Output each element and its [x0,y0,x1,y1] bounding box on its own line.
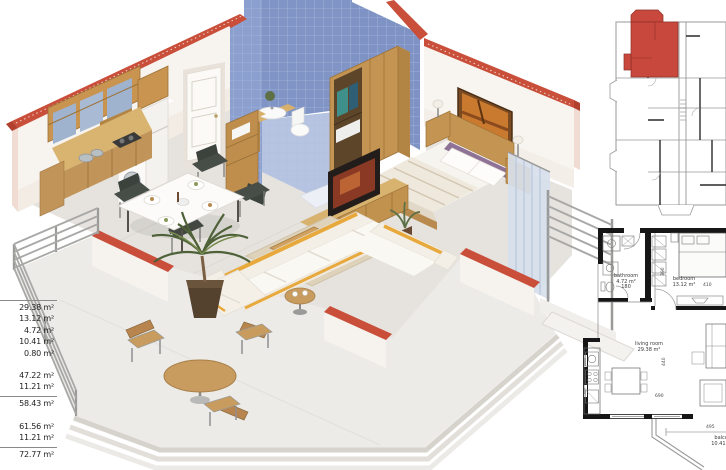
floorplan-image: 29.38 m² 13.12 m² 4.72 m² 10.41 m² 0.80 … [0,0,726,470]
lamp [433,100,443,108]
lamp [513,136,523,144]
area-value: 47.22 m² [0,371,54,380]
area-value: 11.21 m² [0,382,54,391]
bathroom-label: bathroom 4.72 m² 180 [607,274,645,291]
area-value: 0.80 m² [0,349,54,358]
dim-440: 440 [662,357,667,366]
room-area: 29.38 m² [627,348,671,354]
door-knob [214,114,218,118]
measure-rule-gross [0,447,57,448]
balcony-label: balcony 10.41 m² [694,436,726,447]
dim-390: 390 [661,267,666,276]
living-room-label: living room 29.38 m² [627,342,671,353]
area-value: 4.72 m² [0,326,54,335]
scene-3d [6,0,634,468]
area-value: 29.38 m² [0,303,54,312]
overview-plan [610,10,726,215]
area-total: 72.77 m² [0,450,54,459]
area-value: 13.12 m² [0,314,54,323]
room-area: 13.12 m² [664,283,704,289]
measure-rule-net [0,396,57,397]
bathroom-plant [265,91,275,101]
floorplan-render [0,0,726,470]
room-area: 10.41 m² [694,442,726,448]
area-value: 10.41 m² [0,337,54,346]
room-dim: 180 [607,285,645,291]
area-total: 58.43 m² [0,399,54,408]
highlighted-unit [624,10,678,77]
area-value: 11.21 m² [0,433,54,442]
dim-690: 690 [655,394,664,399]
area-value: 61.56 m² [0,422,54,431]
detail-bedroom-symbols [671,233,726,305]
bedroom-label: bedroom 13.12 m² [664,277,704,288]
dim-495: 495 [706,425,715,430]
dim-410: 410 [703,283,712,288]
measure-rule-top [0,300,57,301]
